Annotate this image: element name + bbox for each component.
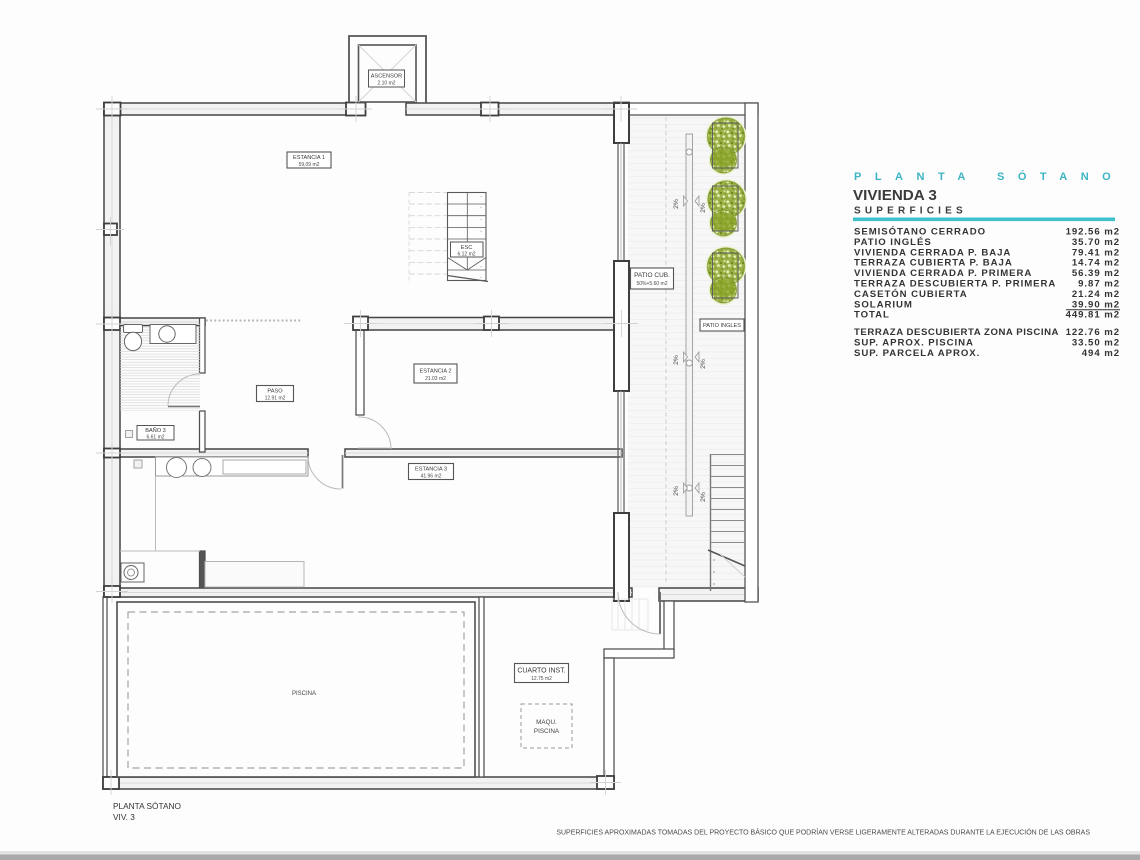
svg-text:PISCINA: PISCINA bbox=[292, 691, 316, 697]
svg-text:41.96 m2: 41.96 m2 bbox=[421, 474, 442, 480]
svg-text:ASCENSOR: ASCENSOR bbox=[371, 74, 402, 80]
svg-text:2.10 m2: 2.10 m2 bbox=[377, 81, 395, 87]
svg-text:35.70 m2: 35.70 m2 bbox=[1072, 237, 1120, 248]
svg-text:50%+5.60 m2: 50%+5.60 m2 bbox=[637, 281, 668, 287]
svg-text:21.24 m2: 21.24 m2 bbox=[1072, 289, 1120, 300]
svg-text:12.75 m2: 12.75 m2 bbox=[531, 676, 552, 682]
svg-text:TERRAZA DESCUBIERTA ZONA PISC: TERRAZA DESCUBIERTA ZONA PISCINA bbox=[854, 327, 1059, 338]
svg-text:33.50 m2: 33.50 m2 bbox=[1072, 338, 1120, 349]
svg-text:9.87 m2: 9.87 m2 bbox=[1078, 279, 1120, 290]
svg-text:VIV. 3: VIV. 3 bbox=[113, 812, 135, 822]
svg-text:CASETÓN CUBIERTA: CASETÓN CUBIERTA bbox=[854, 288, 968, 300]
svg-text:SUPERFICIES: SUPERFICIES bbox=[854, 206, 967, 217]
svg-text:SEMISÓTANO CERRADO: SEMISÓTANO CERRADO bbox=[854, 226, 986, 238]
svg-text:6.12 m2: 6.12 m2 bbox=[457, 252, 475, 258]
svg-text:MAQU.: MAQU. bbox=[536, 719, 557, 726]
svg-text:59,09 m2: 59,09 m2 bbox=[299, 162, 320, 168]
svg-text:ESC: ESC bbox=[461, 245, 473, 251]
svg-text:449.81 m2: 449.81 m2 bbox=[1066, 310, 1120, 321]
svg-text:2%: 2% bbox=[700, 359, 707, 369]
svg-text:TOTAL: TOTAL bbox=[854, 310, 890, 321]
svg-text:PATIO CUB.: PATIO CUB. bbox=[634, 272, 670, 279]
svg-text:PATIO INGLÉS: PATIO INGLÉS bbox=[854, 236, 932, 248]
svg-text:21.03 m2: 21.03 m2 bbox=[425, 376, 446, 382]
svg-text:PASO: PASO bbox=[267, 389, 283, 395]
svg-text:2%: 2% bbox=[673, 199, 680, 209]
svg-text:CUARTO INST.: CUARTO INST. bbox=[517, 668, 565, 675]
svg-text:ESTANCIA 1: ESTANCIA 1 bbox=[293, 155, 325, 161]
svg-text:ESTANCIA 3: ESTANCIA 3 bbox=[415, 467, 447, 473]
svg-text:6.61 m2: 6.61 m2 bbox=[146, 435, 164, 441]
svg-text:56.39 m2: 56.39 m2 bbox=[1072, 268, 1120, 279]
svg-text:2%: 2% bbox=[673, 355, 680, 365]
svg-text:PLANTA SÓTANO: PLANTA SÓTANO bbox=[113, 801, 181, 811]
svg-text:PATIO INGLES: PATIO INGLES bbox=[703, 323, 741, 329]
svg-text:2%: 2% bbox=[673, 486, 680, 496]
svg-text:VIVIENDA 3: VIVIENDA 3 bbox=[853, 187, 937, 204]
svg-text:SUP. APROX. PISCINA: SUP. APROX. PISCINA bbox=[854, 338, 974, 349]
svg-text:2%: 2% bbox=[700, 203, 707, 213]
svg-text:2%: 2% bbox=[700, 492, 707, 502]
svg-text:494 m2: 494 m2 bbox=[1082, 348, 1120, 359]
svg-text:TERRAZA DESCUBIERTA P. PRIMERA: TERRAZA DESCUBIERTA P. PRIMERA bbox=[854, 279, 1056, 290]
svg-text:BAÑO 3: BAÑO 3 bbox=[145, 427, 166, 434]
svg-text:192.56 m2: 192.56 m2 bbox=[1066, 227, 1120, 238]
svg-text:PISCINA: PISCINA bbox=[534, 728, 560, 735]
svg-text:SÓTANO: SÓTANO bbox=[997, 170, 1124, 183]
svg-text:TERRAZA CUBIERTA P. BAJA: TERRAZA CUBIERTA P. BAJA bbox=[854, 258, 1013, 269]
svg-text:SUP. PARCELA APROX.: SUP. PARCELA APROX. bbox=[854, 348, 980, 359]
svg-text:122.76 m2: 122.76 m2 bbox=[1066, 327, 1120, 338]
svg-text:ESTANCIA 2: ESTANCIA 2 bbox=[420, 369, 452, 375]
svg-text:VIVIENDA CERRADA P. PRIMERA: VIVIENDA CERRADA P. PRIMERA bbox=[854, 268, 1032, 279]
svg-text:12.91 m2: 12.91 m2 bbox=[265, 396, 286, 402]
svg-text:SUPERFICIES APROXIMADAS TOMADA: SUPERFICIES APROXIMADAS TOMADAS DEL PROY… bbox=[556, 828, 1090, 837]
svg-text:PLANTA: PLANTA bbox=[854, 171, 979, 183]
svg-text:14.74 m2: 14.74 m2 bbox=[1072, 258, 1120, 269]
